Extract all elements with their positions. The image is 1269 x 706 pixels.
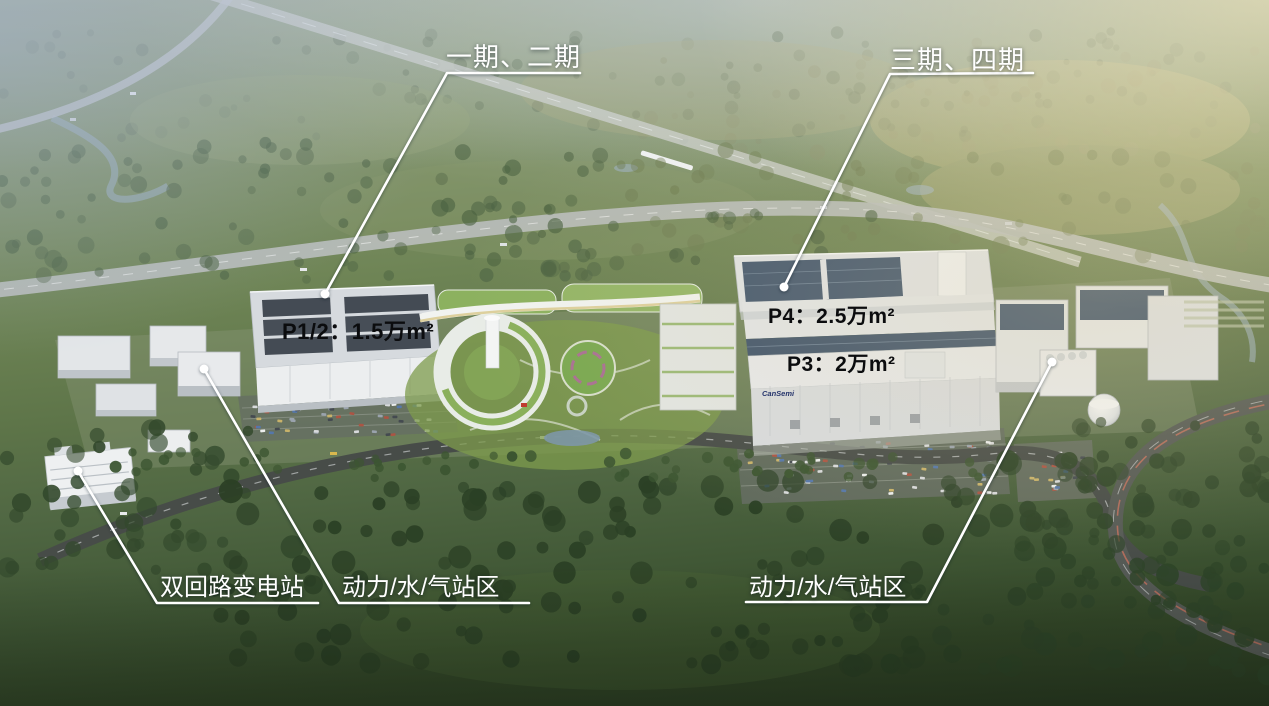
phase-1-2-label: 一期、二期 bbox=[446, 37, 581, 74]
utility-west-label: 动力/水/气站区 bbox=[342, 567, 499, 602]
p12-area-label: P1/2：1.5万m² bbox=[282, 314, 434, 346]
circular-garden bbox=[561, 341, 615, 395]
phase-3-4-label: 三期、四期 bbox=[890, 40, 1025, 77]
red-flags bbox=[521, 403, 527, 407]
p3-area-label: P3：2万m² bbox=[787, 348, 896, 378]
campus-aerial-rendering: 一期、二期 三期、四期 P1/2：1.5万m² P4：2.5万m² P3：2万m… bbox=[0, 0, 1269, 706]
cansemi-logo: CanSemi bbox=[762, 389, 794, 398]
utility-east-label: 动力/水/气站区 bbox=[749, 567, 906, 602]
spiral-tower bbox=[486, 318, 499, 368]
substation-label: 双回路变电站 bbox=[160, 567, 304, 602]
pond bbox=[544, 430, 600, 446]
mid-office-building bbox=[660, 304, 736, 410]
p4-area-label: P4：2.5万m² bbox=[768, 300, 895, 330]
